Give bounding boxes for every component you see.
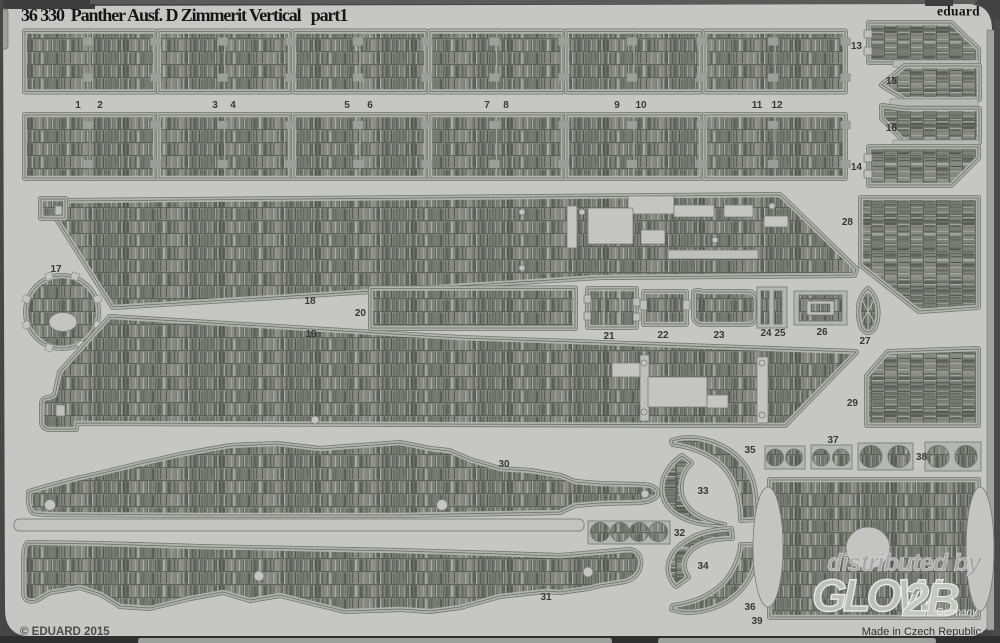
svg-text:12: 12 [771,100,783,111]
svg-text:36: 36 [744,602,756,613]
svg-text:30: 30 [498,459,510,470]
svg-text:39: 39 [751,616,763,627]
svg-text:3: 3 [212,100,218,111]
svg-text:26: 26 [816,327,828,338]
svg-text:16: 16 [886,123,898,134]
svg-text:18: 18 [304,296,316,307]
svg-text:13: 13 [851,41,863,52]
svg-text:29: 29 [847,398,859,409]
svg-text:Made in Czech Republic: Made in Czech Republic [862,626,982,638]
svg-text:4: 4 [230,100,236,111]
svg-text:19: 19 [305,329,317,340]
svg-text:37: 37 [827,435,839,446]
svg-text:20: 20 [355,308,367,319]
svg-text:35: 35 [744,445,756,456]
svg-text:6: 6 [367,100,373,111]
svg-text:34: 34 [697,561,709,572]
svg-text:21: 21 [603,331,615,342]
svg-text:22: 22 [657,330,669,341]
svg-text:28: 28 [842,217,854,228]
svg-text:Germany: Germany [936,607,978,618]
svg-text:23: 23 [713,330,725,341]
svg-text:eduard: eduard [937,4,980,19]
svg-text:2: 2 [97,100,103,111]
svg-text:38: 38 [916,452,928,463]
svg-text:1: 1 [75,100,81,111]
svg-text:27: 27 [859,336,871,347]
svg-text:36 330 Panther Ausf. D Zimmer: 36 330 Panther Ausf. D Zimmerit Vertical… [21,5,348,25]
svg-text:14: 14 [851,162,863,173]
svg-text:32: 32 [674,528,686,539]
svg-text:25: 25 [774,328,786,339]
svg-text:5: 5 [344,100,350,111]
svg-text:33: 33 [697,486,709,497]
svg-text:17: 17 [50,264,62,275]
svg-text:24: 24 [760,328,772,339]
svg-text:15: 15 [886,76,898,87]
svg-text:8: 8 [503,100,509,111]
svg-text:7: 7 [484,100,490,111]
svg-text:11: 11 [752,100,763,111]
svg-text:10: 10 [635,100,647,111]
svg-text:9: 9 [614,100,620,111]
svg-text:© EDUARD 2015: © EDUARD 2015 [20,626,110,638]
svg-text:2B: 2B [902,573,959,626]
svg-text:31: 31 [540,592,552,603]
